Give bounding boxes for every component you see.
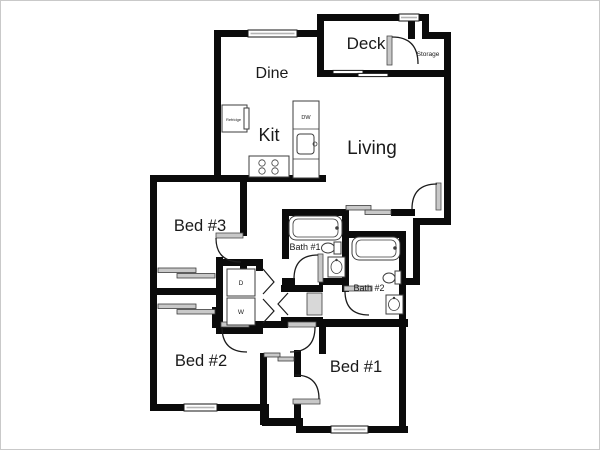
floorplan-image: Deck Storage Dine Kit Living Bed #3 Bath…: [0, 0, 600, 450]
label-washer: W: [238, 309, 245, 316]
kitchen-sink-icon: [297, 134, 317, 154]
stove-icon: [249, 156, 289, 177]
label-refrigerator: Refridge: [226, 117, 242, 122]
door-bed1-closet: [293, 375, 320, 404]
room-label-kitchen: Kit: [258, 125, 279, 145]
window: [184, 404, 217, 411]
door-storage: [387, 36, 418, 65]
bifold-doors: [263, 269, 288, 323]
toilet-icon: [383, 271, 401, 284]
sink-icon: [328, 257, 345, 277]
window: [331, 426, 368, 433]
label-dishwasher: DW: [301, 115, 311, 121]
bathtub-icon: [289, 216, 342, 240]
room-label-bath2: Bath #2: [353, 283, 384, 293]
bath2-fixtures: [352, 237, 403, 314]
toilet-icon: [322, 242, 342, 254]
room-label-dine: Dine: [256, 65, 289, 82]
room-label-bed1: Bed #1: [330, 358, 382, 376]
floorplan-svg: Deck Storage Dine Kit Living Bed #3 Bath…: [1, 1, 600, 450]
room-label-living: Living: [347, 138, 397, 159]
sink-icon: [386, 295, 403, 314]
label-dryer: D: [239, 280, 244, 287]
window: [248, 30, 297, 37]
door-entry: [412, 183, 441, 210]
room-label-bed2: Bed #2: [175, 352, 227, 370]
room-label-bath1: Bath #1: [289, 242, 320, 252]
laundry-fixtures: [227, 269, 255, 325]
door-bath1: [294, 254, 323, 282]
room-label-storage: Storage: [417, 51, 440, 58]
room-label-bed3: Bed #3: [174, 217, 226, 235]
bathtub-icon: [352, 237, 400, 260]
door-bed2: [221, 322, 249, 352]
door-bed1: [288, 322, 316, 352]
window: [399, 14, 419, 21]
shelf-icon: [307, 293, 322, 315]
room-label-deck: Deck: [347, 34, 386, 53]
